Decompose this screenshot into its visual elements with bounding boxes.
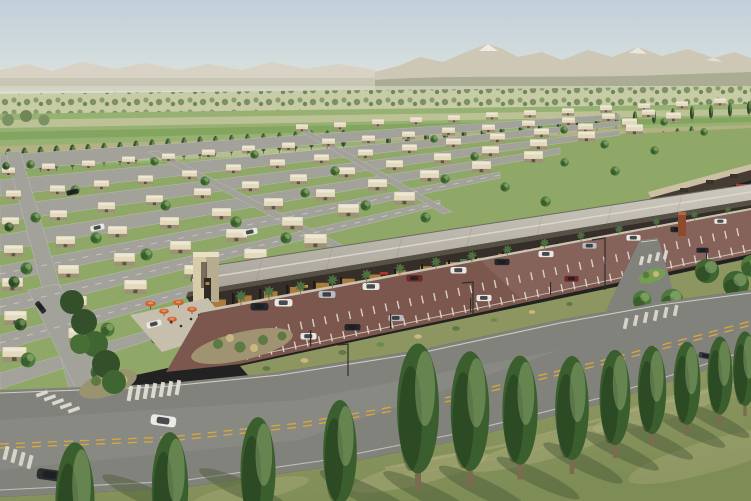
render-canvas xyxy=(0,0,751,501)
monument-sign xyxy=(678,212,686,236)
aerial-development-rendering xyxy=(0,0,751,501)
